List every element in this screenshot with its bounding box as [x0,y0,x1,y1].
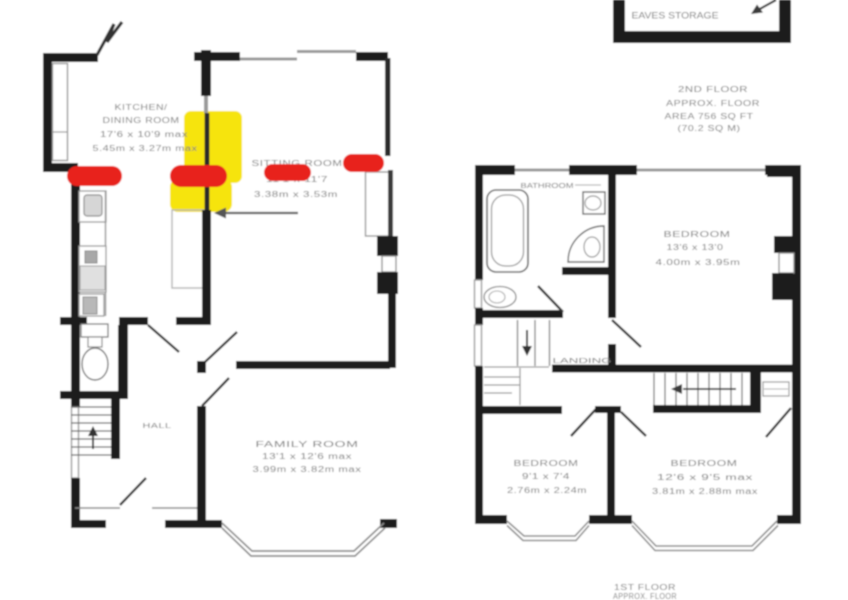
svg-text:3.38m x 3.53m: 3.38m x 3.53m [254,190,338,199]
svg-text:(70.2 SQ M): (70.2 SQ M) [678,124,741,133]
svg-text:3.81m x 2.88m max: 3.81m x 2.88m max [652,487,758,496]
svg-text:13'1 x 12'6 max: 13'1 x 12'6 max [262,452,352,461]
svg-text:EAVES STORAGE: EAVES STORAGE [632,11,719,21]
svg-text:12'6 x 9'5 max: 12'6 x 9'5 max [657,473,753,482]
svg-text:LANDING: LANDING [553,356,612,365]
svg-text:2.76m x 2.24m: 2.76m x 2.24m [507,486,587,495]
svg-text:4.00m x 3.95m: 4.00m x 3.95m [656,258,741,267]
svg-text:BEDROOM: BEDROOM [671,459,738,468]
svg-text:BATHROOM: BATHROOM [521,181,574,190]
svg-text:13'6 x 13'0: 13'6 x 13'0 [667,243,724,252]
svg-text:3.99m x 3.82m max: 3.99m x 3.82m max [253,465,362,474]
svg-text:BEDROOM: BEDROOM [514,459,579,468]
svg-text:APPROX. FLOOR: APPROX. FLOOR [613,592,677,600]
svg-text:HALL: HALL [143,423,172,430]
svg-text:KITCHEN/: KITCHEN/ [115,103,168,112]
svg-text:BEDROOM: BEDROOM [664,230,731,239]
svg-text:2ND FLOOR: 2ND FLOOR [678,85,748,94]
svg-text:9'1 x 7'4: 9'1 x 7'4 [522,472,570,481]
svg-text:FAMILY ROOM: FAMILY ROOM [256,440,359,449]
svg-text:APPROX. FLOOR: APPROX. FLOOR [666,99,760,108]
svg-text:1ST FLOOR: 1ST FLOOR [614,583,676,592]
svg-text:17'6 x 10'9 max: 17'6 x 10'9 max [100,130,188,139]
svg-text:5.45m x 3.27m max: 5.45m x 3.27m max [93,144,198,153]
svg-text:AREA 756 SQ FT: AREA 756 SQ FT [665,112,754,121]
svg-text:DINING ROOM: DINING ROOM [103,116,180,125]
